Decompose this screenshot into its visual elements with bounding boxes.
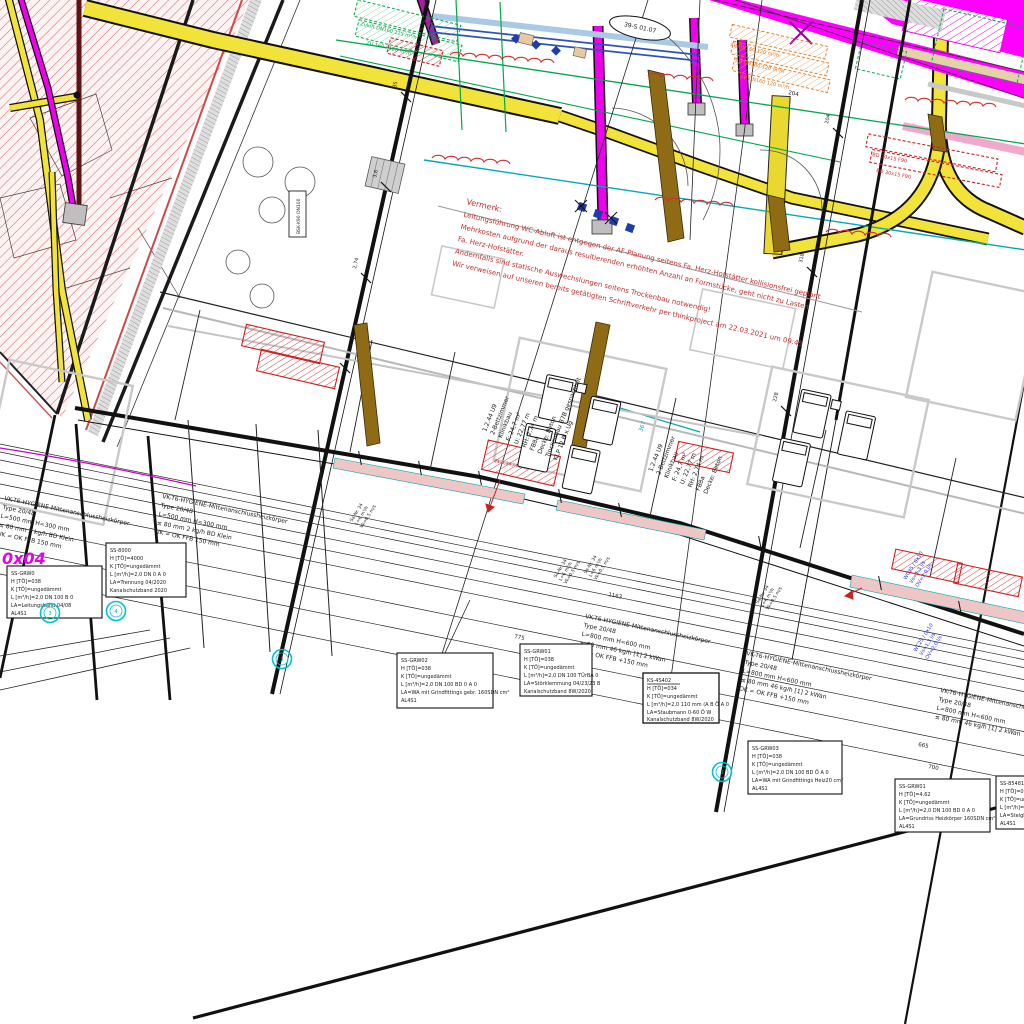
callout-line: K [TÖ]=ungedämmt bbox=[110, 563, 161, 570]
position-bubble-text: 3 bbox=[48, 611, 51, 617]
position-bubble-text: 5 bbox=[720, 770, 723, 776]
radiator-spec-5: VK-T6-HYGIENE-Mittenanschlussheizkörper … bbox=[933, 687, 1024, 746]
callout-line: K [TÖ]=ungedämmt bbox=[1000, 796, 1024, 803]
cad-plan-canvas: Zuluft DN160 125 m³/h ZU 160 / 120 m³/h … bbox=[0, 0, 1024, 1024]
callout-line: L [m³/h]=2,0 DN 0 A 0 bbox=[110, 572, 166, 578]
blue-note-1: WC25 / 0x10 Vs=1,3 l/s OV=2,0 l/s bbox=[913, 623, 947, 661]
callout-line: SS-GRW0 bbox=[11, 571, 35, 577]
callout-line: K [TÖ]=ungedämmt bbox=[524, 664, 575, 671]
callout-line: SS-GRW03 bbox=[752, 746, 779, 752]
callout-line: H [TÖ]=038 bbox=[11, 578, 41, 585]
callout-line: KS-4S402 bbox=[647, 678, 671, 684]
callout-line: L [m³/h]=2,0 DN 100 BD 0 A 0 bbox=[1000, 805, 1024, 811]
callout-box-2: SS-GRW01 H [TÖ]=038 K [TÖ]=ungedämmt L [… bbox=[520, 644, 601, 696]
callout-line: L [m³/h]=2,0 DN 100 BD 0 A 0 bbox=[401, 682, 477, 688]
callout-line: L [m³/h]=2,0 DN 100 B 0 bbox=[11, 595, 73, 601]
callout-box-3: KS-4S402 H [TÖ]=034 K [TÖ]=ungedämmt L [… bbox=[643, 673, 729, 723]
callout-line: LA=Grundriss Heizkörper 160SDN cm² bbox=[899, 816, 995, 822]
callout-line: AL4S1 bbox=[752, 786, 768, 792]
position-bubble-2: 4 bbox=[107, 602, 126, 621]
callout-line: K [TÖ]=ungedämmt bbox=[752, 761, 803, 768]
callout-line: H [TÖ]=4,62 bbox=[899, 791, 931, 798]
callout-line: H [TÖ]=034 bbox=[647, 685, 677, 692]
callout-line: K [TÖ]=ungedämmt bbox=[11, 586, 62, 593]
dim-274: 2,74 bbox=[352, 257, 360, 269]
callout-line: H [TÖ]=038 bbox=[752, 753, 782, 760]
vermerk-line-5: Wir verweisen auf unseren bereits getäti… bbox=[451, 260, 803, 349]
callout-line: L [m³/h]=2,0 DN 100 BD Ö A 0 bbox=[752, 769, 829, 776]
callout-line: LA=WA mit Grindfittings gebr. 160SDN cm² bbox=[401, 690, 509, 696]
dim-204: 204 bbox=[824, 114, 832, 125]
dim-228: 228 bbox=[772, 392, 780, 403]
callout-line: AL4S1 bbox=[1000, 821, 1016, 827]
callout-line: AL4S1 bbox=[899, 824, 915, 830]
callout-box-8: SS-8000 H [TÖ]=4000 K [TÖ]=ungedämmt L [… bbox=[106, 543, 186, 597]
riser-label: 0x04 bbox=[2, 549, 46, 568]
callout-line: H [TÖ]=038 bbox=[401, 665, 431, 672]
callout-line: Kanalschutzband 2020 bbox=[110, 588, 167, 594]
callout-line: K [TÖ]=ungedämmt bbox=[899, 799, 950, 806]
callout-line: L [m³/h]=2,0 DN 100 BD 0 A 0 bbox=[899, 808, 975, 814]
fire-damper-tag-1: BD 30x15 F90 bbox=[872, 152, 908, 165]
dim-700: 700 bbox=[928, 764, 940, 772]
radiator-spec-3: VK-T6-HYGIENE-Mittenanschlussheizkörper … bbox=[576, 613, 711, 681]
callout-line: LA=WA mit Grindfittings Heiz20 cm² bbox=[752, 778, 843, 784]
callout-line: LA=Staubmann 0-60 Ö W bbox=[647, 709, 711, 716]
magenta-arc bbox=[0, 448, 196, 486]
callout-line: SS-8000 bbox=[110, 548, 131, 554]
callout-line: LA=Steigleitung Heizkörper 160 cm² bbox=[1000, 813, 1024, 819]
callout-line: L [m³/h]=2,0 110 mm (A B Ö A 0 bbox=[647, 701, 729, 708]
callout-line: L [m³/h]=2,0 DN 100 TÜrBA 0 bbox=[524, 672, 598, 679]
callout-line: SS-85481 bbox=[1000, 781, 1024, 787]
supply-air-tags-green: Zuluft DN160 125 m³/h ZU 160 / 120 m³/h bbox=[349, 0, 466, 62]
equipment-gray bbox=[365, 157, 405, 194]
dim-318: 318 bbox=[798, 253, 806, 264]
callout-line: AL4S1 bbox=[11, 611, 27, 617]
callout-line: AL4S1 bbox=[401, 698, 417, 704]
dim-665: 665 bbox=[918, 742, 930, 750]
flow-tag-3: Sa-Nr. 34 L=6 m³/h Vk=0,5 m/s bbox=[583, 549, 613, 581]
callout-line: SS-GRW01 bbox=[524, 649, 551, 655]
callout-box-4: SS-GRW03 H [TÖ]=038 K [TÖ]=ungedämmt L [… bbox=[748, 741, 843, 794]
flow-tag-1: Sa-Nr. 34 L=6 m³/h Vk=0,5 m/s bbox=[349, 497, 379, 529]
position-bubble-text: 4 bbox=[114, 609, 117, 615]
fire-damper-label: BSK-K90 DN100 bbox=[289, 191, 306, 237]
cad-plan-viewport: Zuluft DN160 125 m³/h ZU 160 / 120 m³/h … bbox=[0, 0, 1024, 1024]
callout-line: Kanalschutzband 8W/2020 bbox=[524, 689, 591, 695]
callout-line: LA=Trennung 04/2020 bbox=[110, 580, 166, 586]
flow-tag-2: Sa-Nr. 34 L=6 m³/h Vk=0,5 m/s bbox=[553, 553, 583, 585]
callout-line: SS-GRW01 bbox=[899, 784, 926, 790]
callout-line: LA=Störklemmung 04/23/23 B bbox=[524, 681, 601, 687]
callout-box-5: SS-GRW01 H [TÖ]=4,62 K [TÖ]=ungedämmt L … bbox=[895, 779, 995, 832]
callout-line: Kanalschutzband 8W/2020 bbox=[647, 717, 714, 723]
callout-box-6: SS-85481 H [TÖ]=032 K [TÖ]=ungedämmt L [… bbox=[996, 776, 1024, 829]
dim-1163: 1163 bbox=[608, 592, 623, 601]
callout-line: SS-GRW02 bbox=[401, 658, 428, 664]
position-bubble-text: 3 bbox=[280, 657, 283, 663]
red-leader-arrows bbox=[486, 480, 862, 599]
callout-box-7: SS-GRW0 H [TÖ]=038 K [TÖ]=ungedämmt L [m… bbox=[7, 566, 102, 618]
callout-line: K [TÖ]=ungedämmt bbox=[401, 673, 452, 680]
fire-damper-label-text: BSK-K90 DN100 bbox=[296, 198, 302, 234]
callout-line: H [TÖ]=038 bbox=[524, 656, 554, 663]
callout-line: K [TÖ]=ungedämmt bbox=[647, 693, 698, 700]
radiator-spec-4: VK-T6-HYGIENE-Mittenanschlussheizkörper … bbox=[737, 650, 872, 718]
callout-line: H [TÖ]=032 bbox=[1000, 788, 1024, 795]
dim-775: 775 bbox=[514, 634, 526, 642]
fire-damper-tag-2: BD 30x15 F90 bbox=[876, 168, 912, 181]
callout-line: H [TÖ]=4000 bbox=[110, 555, 143, 562]
